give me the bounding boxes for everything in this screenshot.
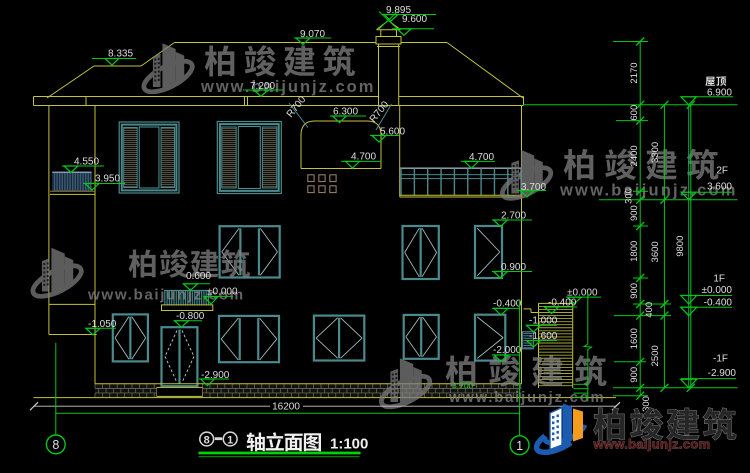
svg-text:-0.800: -0.800 [176, 311, 205, 322]
svg-text:-1.050: -1.050 [88, 319, 117, 330]
svg-text:4.700: 4.700 [469, 152, 494, 163]
svg-text:-2.900: -2.900 [708, 368, 737, 379]
svg-text:www.baijunjz.com: www.baijunjz.com [593, 437, 711, 452]
svg-text:-0.400: -0.400 [493, 299, 522, 310]
svg-text:9.600: 9.600 [402, 14, 427, 25]
svg-text:8: 8 [52, 438, 59, 452]
svg-text:-1.600: -1.600 [529, 331, 558, 342]
svg-text:1: 1 [227, 434, 233, 446]
svg-text:3.950: 3.950 [95, 174, 120, 185]
svg-text:8.335: 8.335 [108, 49, 133, 60]
svg-text:9800: 9800 [675, 236, 686, 257]
svg-text:3600: 3600 [650, 241, 661, 262]
svg-text:-2.900: -2.900 [201, 370, 230, 381]
svg-text:www.baijunjz.com: www.baijunjz.com [448, 390, 606, 406]
svg-text:1600: 1600 [629, 328, 640, 349]
svg-text:2.700: 2.700 [501, 211, 526, 222]
svg-text:300: 300 [624, 188, 635, 204]
svg-text:900: 900 [629, 367, 640, 383]
svg-text:4.550: 4.550 [74, 157, 99, 168]
svg-text:www.baijunjz.com: www.baijunjz.com [200, 78, 375, 96]
svg-text:8: 8 [204, 434, 210, 446]
svg-text:6.300: 6.300 [333, 107, 358, 118]
svg-text:1F: 1F [713, 274, 725, 285]
svg-text:-2.000: -2.000 [493, 345, 522, 356]
svg-text:-1F: -1F [713, 354, 728, 365]
svg-text:600: 600 [629, 105, 640, 121]
svg-text:2170: 2170 [629, 62, 640, 83]
svg-text:1800: 1800 [629, 241, 640, 262]
svg-text:0.900: 0.900 [501, 262, 526, 273]
svg-text:±0.000: ±0.000 [207, 287, 238, 298]
svg-text:16200: 16200 [272, 402, 300, 413]
svg-text:3.700: 3.700 [521, 182, 546, 193]
svg-text:7.200: 7.200 [250, 81, 275, 92]
svg-text:5.600: 5.600 [380, 127, 405, 138]
svg-text:3.600: 3.600 [707, 182, 732, 193]
svg-text:400: 400 [644, 302, 655, 318]
svg-text:2500: 2500 [650, 345, 661, 366]
svg-text:3.200: 3.200 [452, 381, 474, 391]
svg-text:±0.000: ±0.000 [701, 285, 732, 296]
svg-text:9.070: 9.070 [300, 29, 325, 40]
svg-text:1: 1 [516, 439, 523, 453]
svg-text:2F: 2F [716, 166, 728, 177]
svg-text:4.700: 4.700 [351, 152, 376, 163]
svg-text:0.600: 0.600 [186, 271, 211, 282]
svg-text:3300: 3300 [650, 142, 661, 163]
svg-text:-0.400: -0.400 [548, 298, 577, 309]
svg-text:2400: 2400 [629, 145, 640, 166]
svg-text:-1.000: -1.000 [529, 316, 558, 327]
svg-text:1:100: 1:100 [330, 436, 368, 453]
svg-text:900: 900 [629, 283, 640, 299]
svg-text:900: 900 [629, 205, 640, 221]
